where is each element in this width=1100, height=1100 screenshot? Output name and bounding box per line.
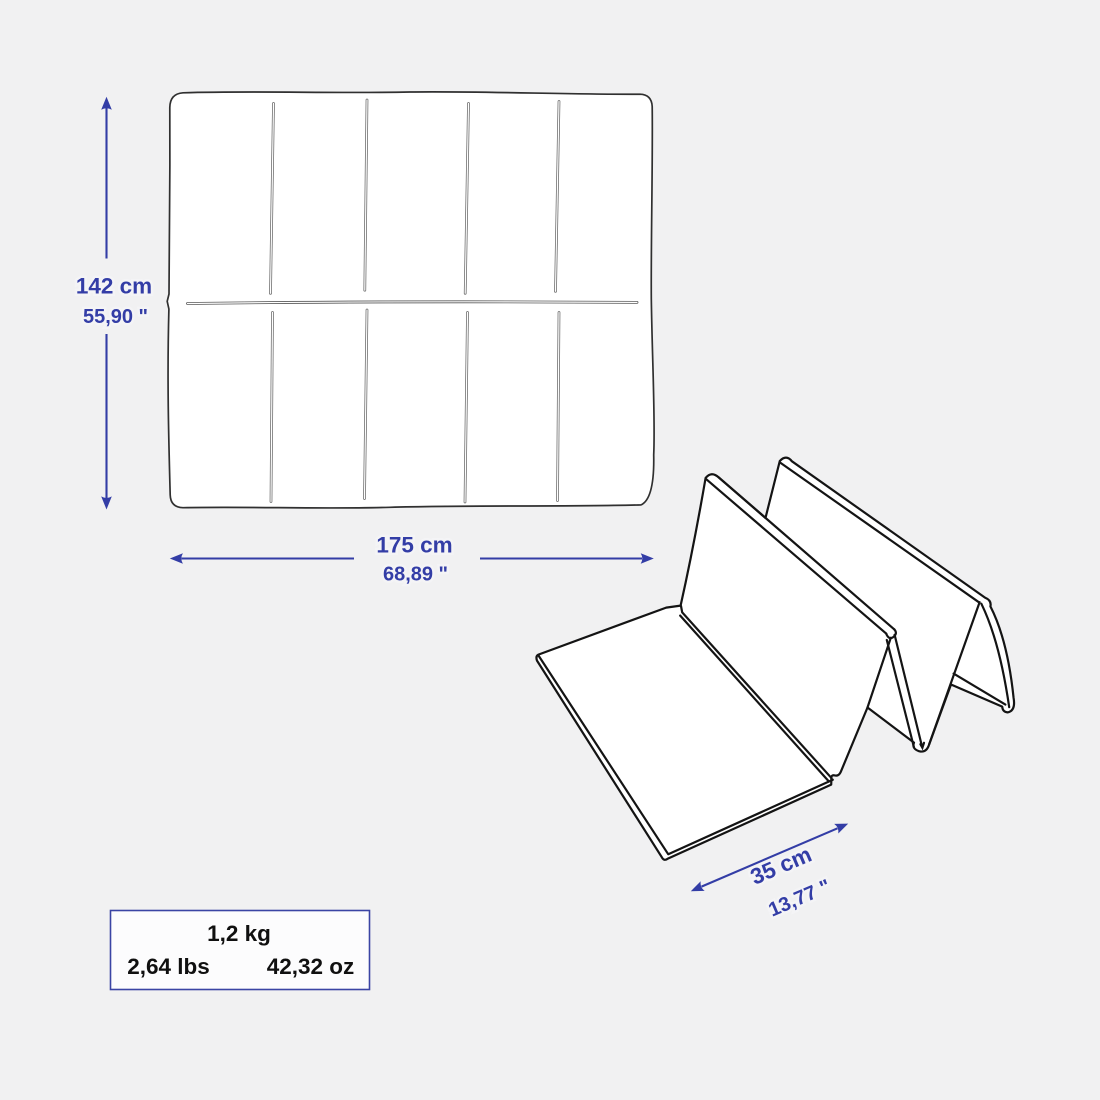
svg-text:1,2 kg: 1,2 kg: [207, 921, 271, 946]
svg-text:55,90 ": 55,90 ": [83, 306, 148, 328]
svg-text:2,64 lbs: 2,64 lbs: [127, 954, 210, 979]
svg-text:68,89 ": 68,89 ": [383, 564, 448, 586]
svg-text:175 cm: 175 cm: [376, 533, 452, 558]
svg-text:142 cm: 142 cm: [76, 274, 152, 299]
svg-text:42,32 oz: 42,32 oz: [267, 954, 355, 979]
